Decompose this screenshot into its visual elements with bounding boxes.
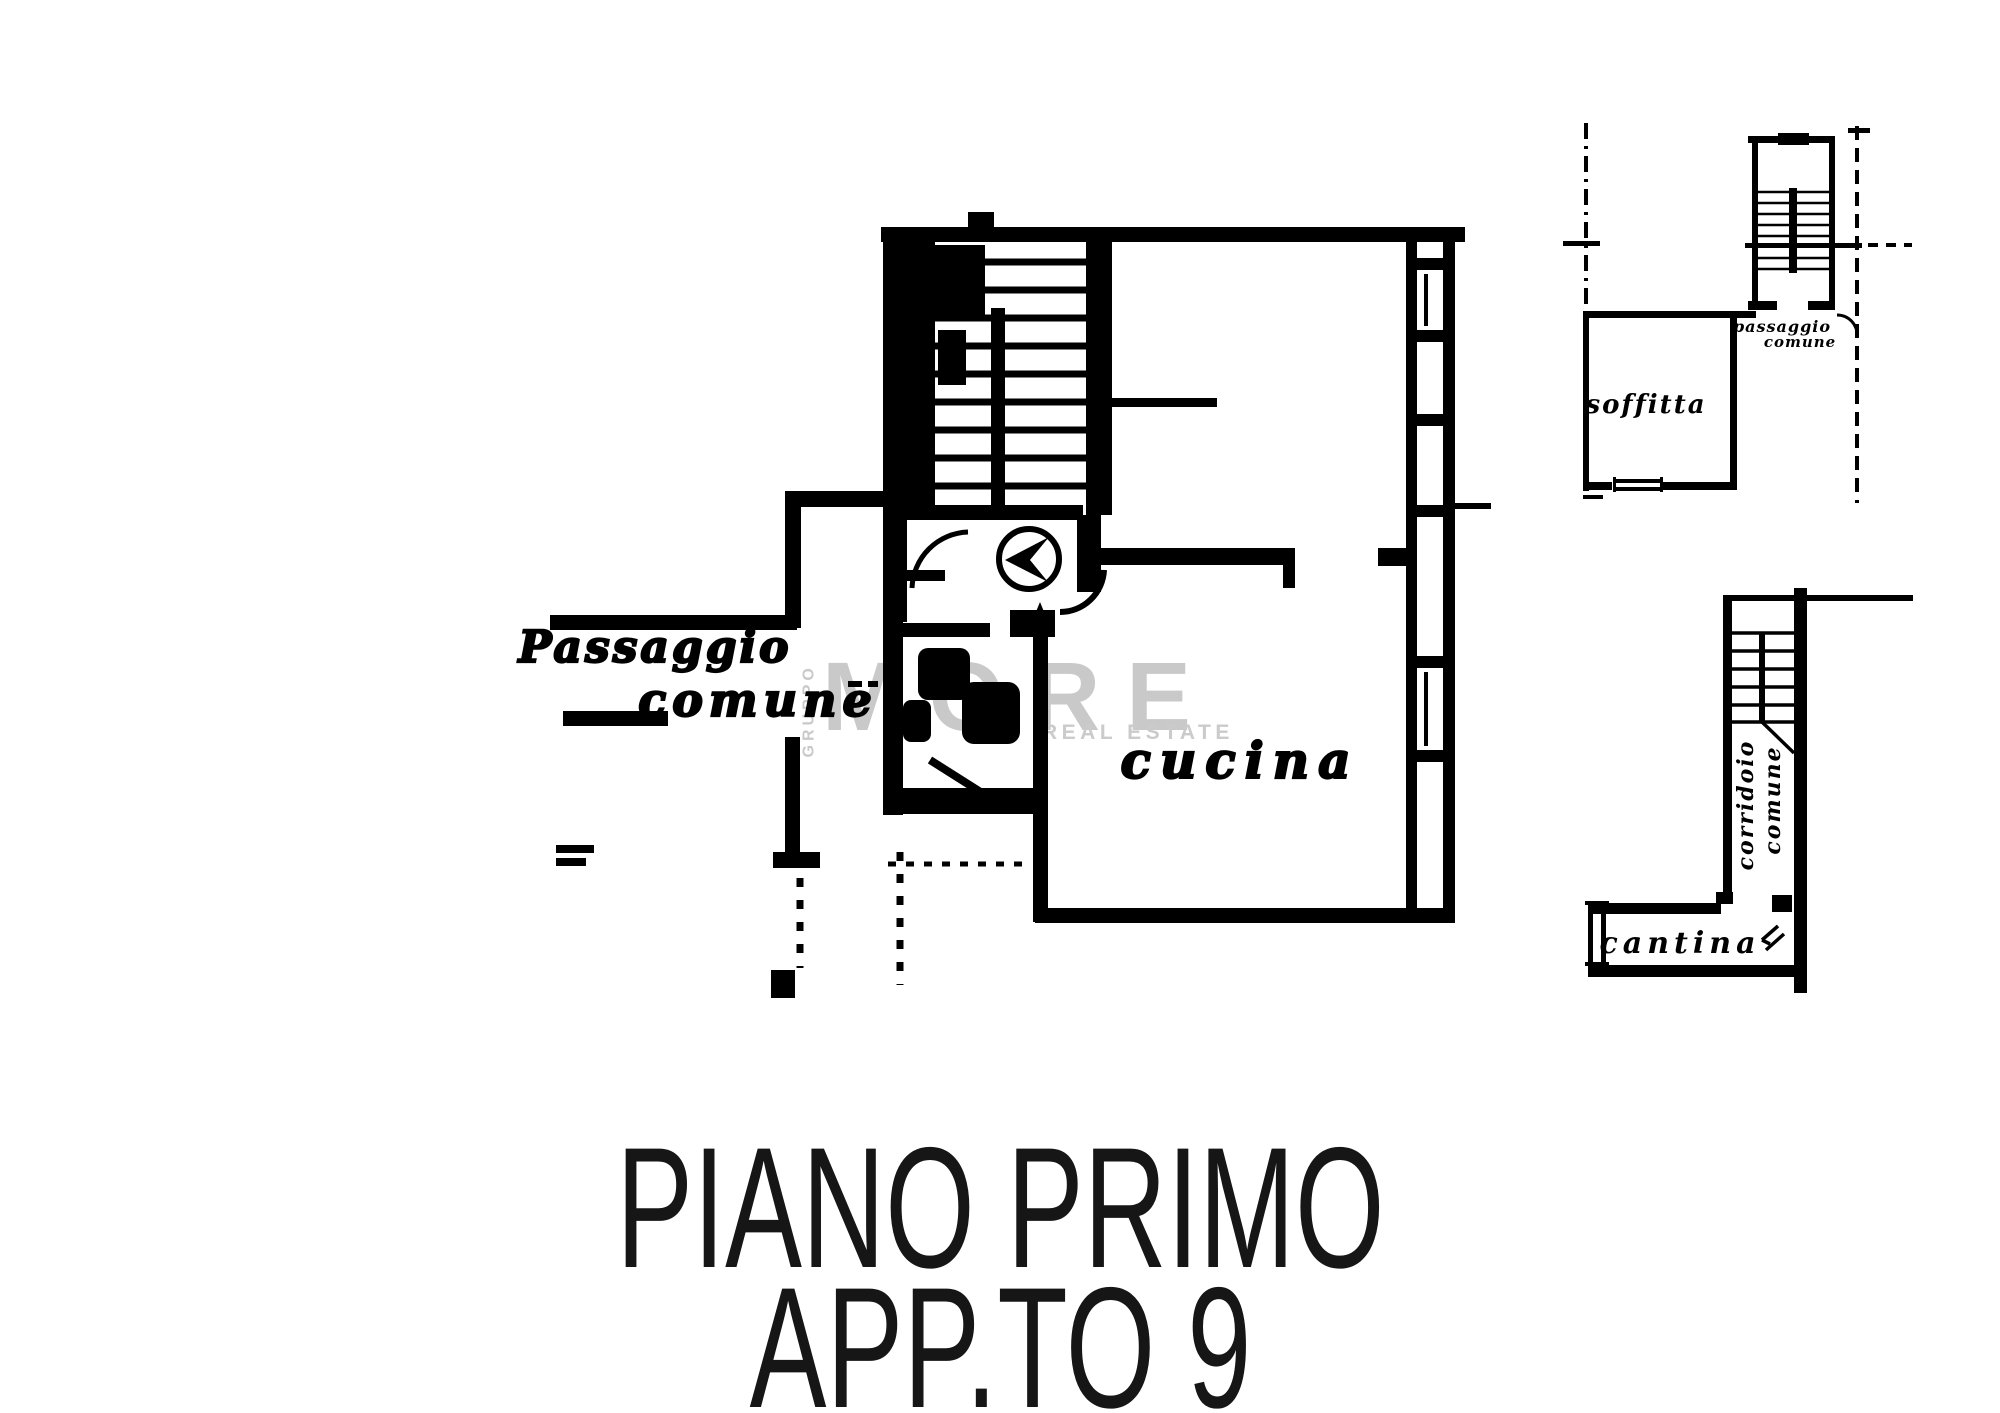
plan-caption: PIANO PRIMO APP.TO 9 xyxy=(0,1138,2000,1413)
door-swing-arc xyxy=(1837,315,1857,337)
window-glazing xyxy=(1424,672,1428,746)
section-line xyxy=(1745,243,1862,248)
label-comune-small: comune xyxy=(1764,333,1836,351)
cantina-arrow-mark xyxy=(1762,926,1784,950)
scanned-floorplan-page: GRUPPO MORE REAL ESTATE xyxy=(0,0,2000,1413)
room-label-cantina: cantina xyxy=(1599,926,1760,961)
soffitta-plan: passaggio comune soffitta xyxy=(1555,90,1920,515)
section-line-tick xyxy=(1563,241,1600,246)
top-line xyxy=(1723,595,1913,601)
soffitta-staircase xyxy=(1748,133,1835,310)
north-arrow-icon xyxy=(999,529,1059,589)
dashed-projection-lines xyxy=(800,852,1030,985)
vestibule-walls xyxy=(900,515,1408,612)
room-label-soffitta: soffitta xyxy=(1584,390,1706,420)
cantina-plan: corridoio comune cantina xyxy=(1560,575,1920,1005)
room-label-cucina: cucina xyxy=(1121,731,1360,790)
stair-divider xyxy=(1759,633,1765,722)
bathroom xyxy=(883,622,1048,815)
room-label-comune: comune xyxy=(638,673,878,727)
label-comune-rotated: comune xyxy=(1760,745,1786,854)
passaggio-comune-walls xyxy=(550,491,888,998)
room-label-passaggio: Passaggio xyxy=(516,622,791,673)
dash-top-tick xyxy=(1848,128,1870,133)
window-line xyxy=(1616,487,1660,491)
thick-party-wall xyxy=(1794,588,1807,993)
bidet-fixture xyxy=(962,682,1020,744)
window-line xyxy=(1588,903,1593,965)
window-glazing xyxy=(1424,274,1428,326)
plan-title-line2: APP.TO 9 xyxy=(0,1278,2000,1413)
sink-fixture xyxy=(903,700,931,742)
window-line xyxy=(1616,479,1660,483)
main-floor-plan: Passaggio comune cucina xyxy=(500,180,1560,1010)
label-corridoio-rotated: corridoio xyxy=(1733,740,1759,871)
